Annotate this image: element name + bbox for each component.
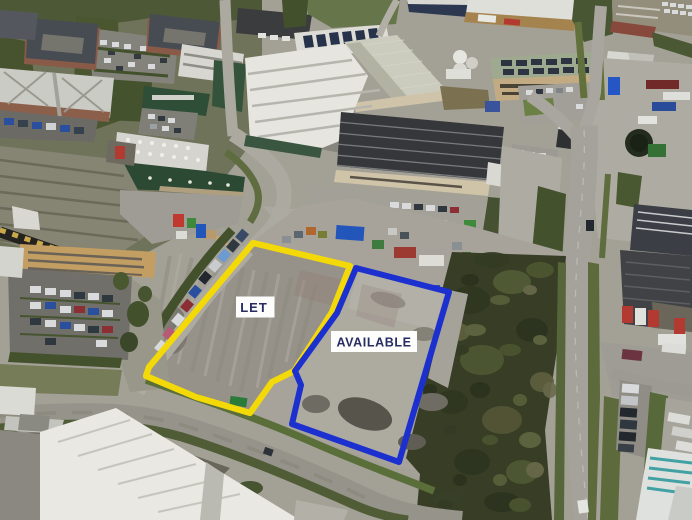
svg-text:LET: LET [240, 300, 268, 315]
svg-text:AVAILABLE: AVAILABLE [336, 336, 411, 350]
